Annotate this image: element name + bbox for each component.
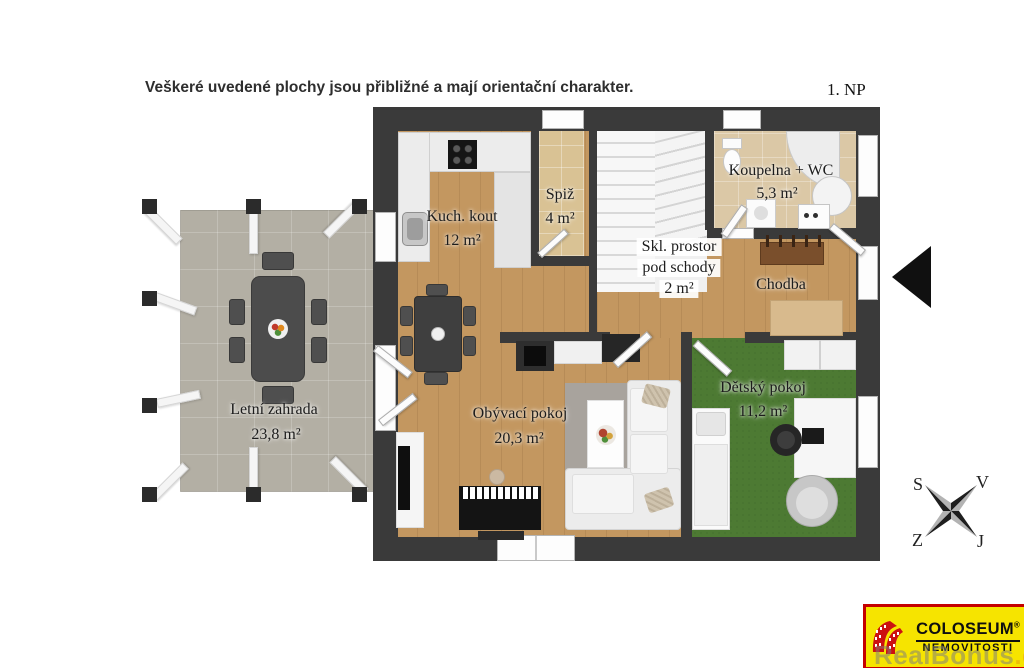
house-wall-bottom (373, 537, 880, 561)
bathroom-area: 5,3 m² (756, 185, 797, 203)
floor-plan-canvas: Veškeré uvedené plochy jsou přibližné a … (0, 0, 1024, 668)
pergola-beam (249, 212, 258, 254)
bay-window-mullion (535, 536, 537, 560)
toilet-tank (722, 138, 742, 149)
compass-rose-icon (922, 482, 980, 540)
pergola-post (246, 199, 261, 214)
dining-chair (463, 306, 476, 326)
bathroom-label: Koupelna + WC (729, 162, 834, 180)
garden-chair (229, 299, 245, 325)
washer-knob (804, 213, 809, 218)
compass-letter-j: J (977, 531, 984, 552)
garden-chair (262, 252, 294, 270)
garden-chair (311, 337, 327, 363)
pantry-area: 4 m² (545, 210, 574, 228)
kitchen-cabinet-column (494, 172, 531, 268)
pergola-beam (249, 447, 258, 489)
dining-chair (426, 284, 448, 296)
kids-room-area: 11,2 m² (739, 403, 788, 421)
table-decor (431, 327, 445, 341)
floor-label: 1. NP (827, 80, 866, 100)
pergola-post (352, 199, 367, 214)
wall-living-kids (681, 332, 692, 537)
washer-knob (813, 213, 818, 218)
pergola-post (142, 398, 157, 413)
bathroom-sink-bowl (754, 206, 768, 220)
window-bathroom-top (723, 110, 761, 129)
coat-hook (792, 235, 795, 247)
watermark: RealBonus.cz (874, 640, 1024, 668)
garden-chair (229, 337, 245, 363)
wall-stairs-bathroom (705, 130, 714, 230)
disclaimer-text: Veškeré uvedené plochy jsou přibližné a … (145, 79, 633, 97)
stool (489, 469, 505, 485)
garden-label: Letní zahrada (230, 401, 318, 419)
coat-hook (766, 235, 769, 247)
wardrobe-divider (819, 340, 821, 370)
desk-monitor (802, 428, 824, 444)
armchair-seat (796, 487, 828, 519)
dining-chair (424, 372, 448, 385)
watermark-text: RealBonus (874, 640, 1014, 668)
bed-blanket (694, 444, 728, 526)
window-pantry (542, 110, 584, 129)
media-unit-white (554, 341, 602, 364)
garden-area: 23,8 m² (251, 426, 300, 444)
compass-letter-z: Z (912, 530, 923, 551)
coat-hook (779, 235, 782, 247)
flower-bouquet (596, 425, 616, 445)
compass-letter-s: S (913, 474, 923, 495)
house-wall-left (373, 107, 398, 561)
sofa-cushion (630, 434, 668, 474)
sofa-cushion (572, 474, 634, 514)
window-kitchen (375, 212, 396, 262)
piano-bench (478, 531, 524, 540)
dining-chair (400, 306, 413, 326)
fruit-bowl (268, 319, 288, 339)
registered-mark: ® (1014, 620, 1020, 629)
tv-screen (524, 346, 546, 366)
cooktop (448, 140, 477, 169)
compass-letter-v: V (976, 472, 989, 493)
kitchen-area: 12 m² (443, 232, 480, 250)
stair-treads (655, 130, 707, 250)
bed-pillow (696, 412, 726, 436)
pergola-post (142, 199, 157, 214)
pergola-post (142, 291, 157, 306)
living-room-label: Obývací pokoj (473, 405, 568, 423)
coat-hook (805, 235, 808, 247)
pergola-post (352, 487, 367, 502)
storage-label-line1: Skl. prostor (637, 238, 722, 256)
garden-chair (311, 299, 327, 325)
piano-keys (461, 487, 539, 499)
house-wall-top (373, 107, 880, 131)
logo-brand: COLOSEUM (916, 620, 1014, 638)
pergola-post (142, 487, 157, 502)
pantry-label: Spiž (546, 186, 574, 204)
shoe-cabinet (770, 300, 843, 336)
entrance-arrow-icon (892, 246, 931, 308)
window-kids-room (858, 396, 878, 468)
living-room-area: 20,3 m² (494, 430, 543, 448)
wall-pantry-stairs (589, 130, 597, 338)
wall-tv (398, 446, 410, 510)
dining-chair (400, 336, 413, 356)
dining-chair (463, 336, 476, 356)
hallway-label: Chodba (756, 276, 806, 294)
coat-hook (818, 235, 821, 247)
watermark-suffix: .cz (1014, 640, 1024, 668)
window-bathroom-right (858, 135, 878, 197)
kitchen-label: Kuch. kout (426, 208, 497, 226)
wall-kitchen-pantry (531, 130, 539, 258)
kitchen-sink-bowl (407, 218, 423, 240)
desk-chair-seat (777, 431, 795, 449)
storage-area: 2 m² (659, 280, 698, 298)
kids-room-label: Dětský pokoj (720, 379, 806, 397)
pergola-post (246, 487, 261, 502)
storage-label-line2: pod schody (637, 259, 720, 277)
